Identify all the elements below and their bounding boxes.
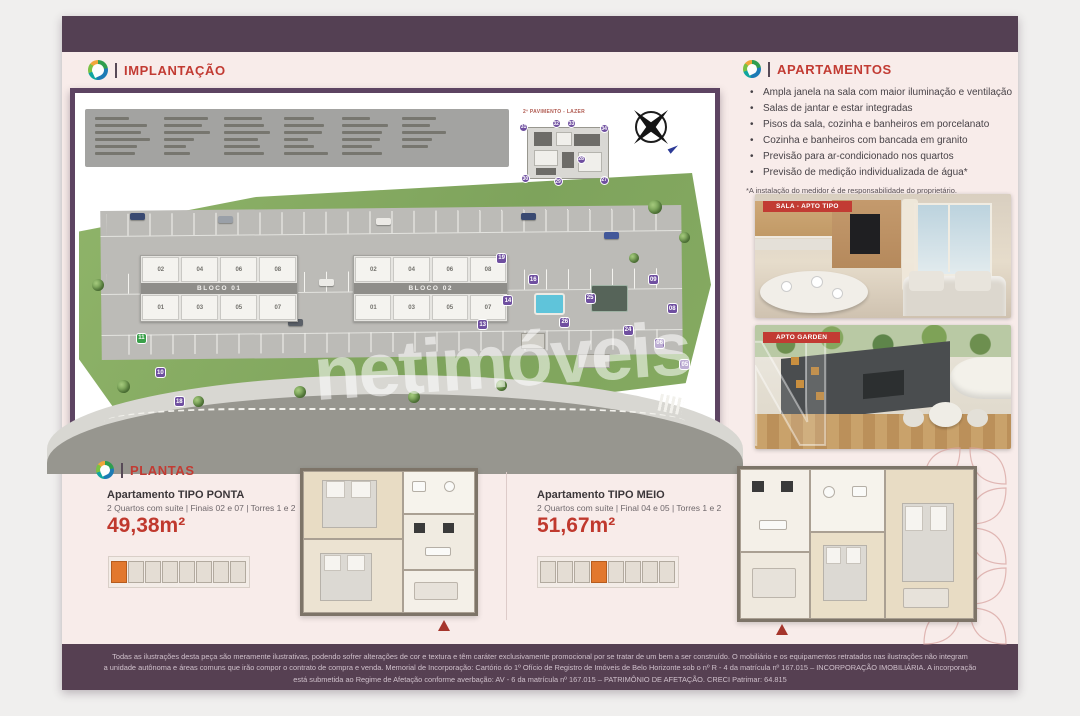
keyplan-unit bbox=[625, 561, 641, 583]
plan-badge: 06 bbox=[654, 338, 665, 349]
keyplan-unit bbox=[196, 561, 212, 583]
unit1-floorplan bbox=[300, 468, 478, 616]
plan-badges-layer: 1110181916141326252409080605 bbox=[79, 173, 711, 439]
keyplan-unit bbox=[574, 561, 590, 583]
feature-item: Previsão de medição individualizada de á… bbox=[746, 166, 1022, 179]
feature-item: Previsão para ar-condicionado nos quarto… bbox=[746, 150, 1022, 163]
disclaimer-line-3: está submetida ao Regime de Afetação con… bbox=[62, 674, 1018, 685]
plantas-header: PLANTAS bbox=[96, 461, 195, 479]
keyplan-unit bbox=[230, 561, 246, 583]
site-plan-legend bbox=[85, 109, 509, 167]
kitchen-1 bbox=[403, 514, 475, 571]
screenshot-canvas: IMPLANTAÇÃO 2º PAVIMENTO - LAZER 3132333… bbox=[0, 0, 1080, 716]
inset-plan-label: 2º PAVIMENTO - LAZER bbox=[523, 109, 585, 115]
inset-badge: 29 bbox=[554, 177, 563, 186]
plantas-title: PLANTAS bbox=[130, 463, 195, 478]
keyplan-unit bbox=[128, 561, 144, 583]
site-plan-artwork: 02 04 06 08 BLOCO 01 01 03 05 07 bbox=[79, 173, 711, 439]
unit2-keyplan bbox=[537, 556, 679, 588]
disclaimer-line-2: a unidade autônoma e áreas comuns que ir… bbox=[62, 662, 1018, 673]
unit1-keyplan bbox=[108, 556, 250, 588]
kitchen-2 bbox=[740, 469, 810, 552]
unit2-entry-arrow bbox=[776, 624, 788, 635]
unit2-floorplan bbox=[737, 466, 977, 622]
header-divider bbox=[121, 463, 123, 478]
plan-badge: 25 bbox=[585, 293, 596, 304]
plan-badge: 18 bbox=[174, 396, 185, 407]
feature-item: Ampla janela na sala com maior iluminaçã… bbox=[746, 86, 1022, 99]
plan-badge: 16 bbox=[528, 274, 539, 285]
unit2-specs: 2 Quartos com suíte | Final 04 e 05 | To… bbox=[537, 503, 721, 513]
netimoveis-logo-icon bbox=[88, 60, 108, 80]
keyplan-unit bbox=[145, 561, 161, 583]
photo-tag-garden: APTO GARDEN bbox=[763, 332, 840, 343]
legal-disclaimer: Todas as ilustrações desta peça são mera… bbox=[62, 644, 1018, 690]
patio-table bbox=[929, 402, 962, 427]
unit1-name: Apartamento TIPO PONTA bbox=[107, 489, 244, 501]
bedroom-3 bbox=[810, 532, 885, 619]
inset-badge: 31 bbox=[519, 123, 528, 132]
inset-badge: 34 bbox=[600, 124, 609, 133]
plan-badge: 24 bbox=[623, 325, 634, 336]
plan-badge: 11 bbox=[136, 333, 147, 344]
inset-badge: 32 bbox=[552, 119, 561, 128]
site-plan-frame: 2º PAVIMENTO - LAZER 3132333428302927 bbox=[70, 88, 720, 450]
plan-badge: 09 bbox=[648, 274, 659, 285]
disclaimer-line-1: Todas as ilustrações desta peça são mera… bbox=[62, 651, 1018, 662]
feature-item: Cozinha e banheiros com bancada em grani… bbox=[746, 134, 1022, 147]
plan-badge: 14 bbox=[502, 295, 513, 306]
netimoveis-logo-icon bbox=[743, 60, 761, 78]
brochure-page: IMPLANTAÇÃO 2º PAVIMENTO - LAZER 3132333… bbox=[62, 16, 1018, 690]
legend-column bbox=[402, 117, 446, 159]
plan-badge: 10 bbox=[155, 367, 166, 378]
legend-column bbox=[224, 117, 270, 159]
unit1-specs: 2 Quartos com suíte | Finais 02 e 07 | T… bbox=[107, 503, 296, 513]
plan-badge: 05 bbox=[679, 359, 690, 370]
plan-badge: 08 bbox=[667, 303, 678, 314]
apartamentos-header: APARTAMENTOS bbox=[743, 60, 892, 78]
unit1-entry-arrow bbox=[438, 620, 450, 631]
keyplan-unit bbox=[162, 561, 178, 583]
apartment-features: Ampla janela na sala com maior iluminaçã… bbox=[746, 86, 1022, 195]
wall-window bbox=[863, 370, 904, 399]
unit2-area: 51,67m² bbox=[537, 514, 615, 538]
feature-list: Ampla janela na sala com maior iluminaçã… bbox=[746, 86, 1022, 179]
photo-sala-apto-tipo: SALA - APTO TIPO bbox=[755, 194, 1011, 318]
living-1 bbox=[403, 570, 475, 613]
legend-column bbox=[342, 117, 388, 159]
legend-column bbox=[164, 117, 210, 159]
header-divider bbox=[768, 62, 770, 77]
plan-badge: 13 bbox=[477, 319, 488, 330]
inset-badge: 33 bbox=[567, 119, 576, 128]
bedroom-4 bbox=[885, 469, 974, 619]
plan-badge: 26 bbox=[559, 317, 570, 328]
window bbox=[914, 203, 992, 276]
living-2 bbox=[740, 552, 810, 620]
unit2-name: Apartamento TIPO MEIO bbox=[537, 489, 665, 501]
apartamentos-title: APARTAMENTOS bbox=[777, 62, 892, 77]
keyplan-unit bbox=[557, 561, 573, 583]
keyplan-unit bbox=[659, 561, 675, 583]
bathroom-1 bbox=[403, 471, 475, 514]
feature-item: Salas de jantar e estar integradas bbox=[746, 102, 1022, 115]
netimoveis-logo-icon bbox=[96, 461, 114, 479]
bathroom-2 bbox=[810, 469, 885, 532]
photo-tag-sala: SALA - APTO TIPO bbox=[763, 201, 852, 212]
keyplan-highlighted-unit bbox=[111, 561, 127, 583]
inset-badge: 27 bbox=[600, 176, 609, 185]
tv-screen bbox=[850, 214, 881, 254]
keyplan-unit bbox=[608, 561, 624, 583]
bedroom-1 bbox=[303, 471, 403, 539]
top-purple-band bbox=[62, 16, 1018, 52]
keyplan-unit bbox=[642, 561, 658, 583]
implantacao-header: IMPLANTAÇÃO bbox=[88, 60, 226, 80]
legend-column bbox=[284, 117, 328, 159]
keyplan-unit bbox=[540, 561, 556, 583]
keyplan-unit bbox=[213, 561, 229, 583]
inset-badge: 28 bbox=[577, 155, 586, 164]
header-divider bbox=[115, 63, 117, 78]
unit1-area: 49,38m² bbox=[107, 514, 185, 538]
feature-item: Pisos da sala, cozinha e banheiros em po… bbox=[746, 118, 1022, 131]
bedroom-2 bbox=[303, 539, 403, 613]
compass-icon bbox=[627, 103, 675, 151]
plan-badge: 19 bbox=[496, 253, 507, 264]
plantas-divider bbox=[506, 472, 507, 620]
implantacao-title: IMPLANTAÇÃO bbox=[124, 63, 226, 78]
north-arrow-icon bbox=[666, 142, 680, 156]
keyplan-highlighted-unit bbox=[591, 561, 607, 583]
legend-column bbox=[95, 117, 150, 159]
keyplan-unit bbox=[179, 561, 195, 583]
photo-apto-garden: APTO GARDEN N bbox=[755, 325, 1011, 449]
